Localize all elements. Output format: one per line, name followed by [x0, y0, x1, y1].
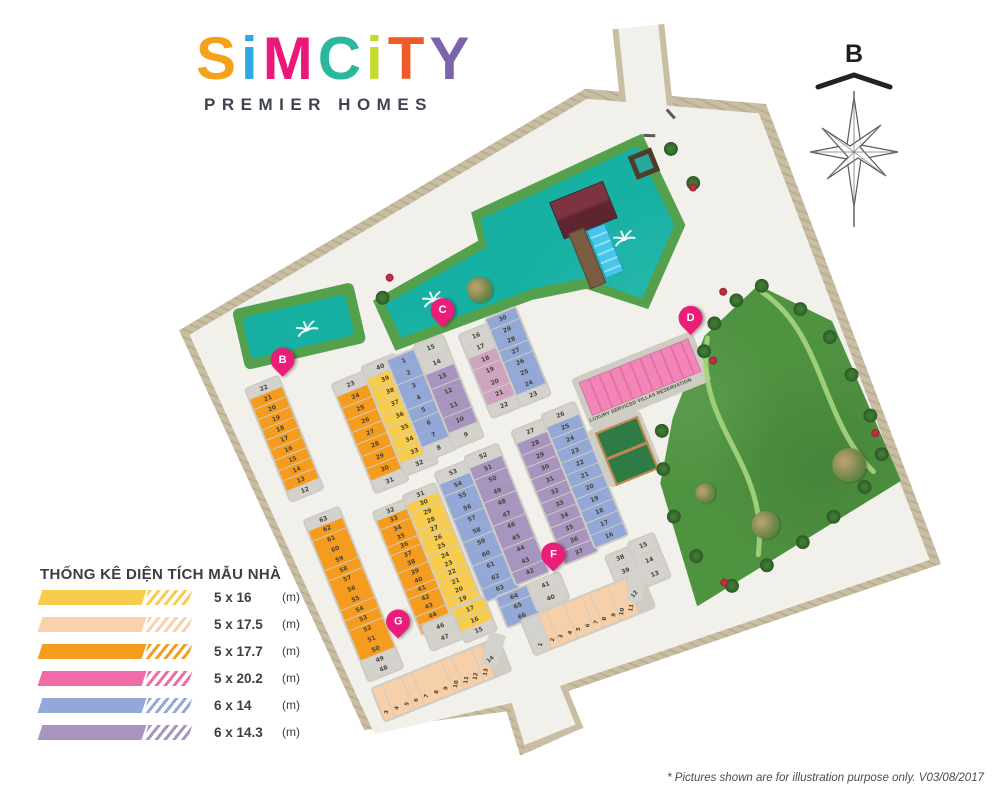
legend-swatch	[38, 698, 195, 713]
legend-swatch-stripes	[144, 590, 193, 605]
legend-unit-label: (m)	[282, 698, 300, 712]
legend-rows: 5 x 16(m)5 x 17.5(m)5 x 17.7(m)5 x 20.2(…	[40, 584, 360, 745]
map-pin-body: B	[266, 343, 300, 377]
legend-item: 5 x 17.7(m)	[40, 638, 360, 664]
legend-item: 5 x 16(m)	[40, 584, 360, 610]
legend-swatch-stripes	[144, 698, 193, 713]
legend-item: 5 x 17.5(m)	[40, 611, 360, 637]
logo-letter: S	[196, 30, 238, 87]
legend-unit-label: (m)	[282, 644, 300, 658]
legend-item: 6 x 14.3(m)	[40, 719, 360, 745]
logo-letter: C	[318, 30, 363, 87]
logo-letter: M	[263, 30, 315, 87]
legend-swatch-stripes	[144, 725, 193, 740]
legend-swatch-stripes	[144, 671, 193, 686]
legend-swatch	[38, 671, 195, 686]
logo-letter: i	[241, 30, 260, 87]
legend-swatch-solid	[38, 671, 147, 686]
logo-letter: T	[388, 30, 427, 87]
legend-title: THỐNG KÊ DIỆN TÍCH MẪU NHÀ	[40, 566, 360, 583]
map-pin-letter: B	[279, 354, 287, 366]
legend-size-label: 5 x 20.2	[214, 671, 282, 686]
legend-swatch-solid	[38, 644, 147, 659]
logo-letter: Y	[429, 30, 471, 87]
map-pin-B[interactable]: B	[271, 348, 295, 372]
legend-swatch-solid	[38, 617, 147, 632]
legend-swatch-solid	[38, 698, 147, 713]
lot-slat: 12	[626, 565, 646, 602]
map-pin-letter: C	[439, 304, 447, 316]
legend-size-label: 5 x 16	[214, 590, 282, 605]
logo-letter: i	[366, 30, 385, 87]
site-plan-page: SiMCiTY PREMIER HOMES B LUXURY SERVICED …	[0, 0, 1000, 810]
legend-unit-label: (m)	[282, 671, 300, 685]
legend-size-label: 6 x 14	[214, 698, 282, 713]
legend-item: 6 x 14(m)	[40, 692, 360, 718]
legend-size-label: 5 x 17.7	[214, 644, 282, 659]
map-pin-body: C	[426, 293, 460, 327]
legend-swatch	[38, 644, 195, 659]
map-pin-C[interactable]: C	[431, 298, 455, 322]
legend-swatch-solid	[38, 725, 147, 740]
legend-swatch-solid	[38, 590, 147, 605]
disclaimer-footnote: * Pictures shown are for illustration pu…	[667, 772, 984, 784]
legend-swatch-stripes	[144, 644, 193, 659]
map-pin-body: F	[536, 538, 570, 572]
legend-unit-label: (m)	[282, 725, 300, 739]
legend-swatch-stripes	[144, 617, 193, 632]
legend-size-label: 6 x 14.3	[214, 725, 282, 740]
logo-tagline: PREMIER HOMES	[196, 95, 466, 115]
map-pin-letter: D	[687, 312, 695, 324]
map-pin-G[interactable]: G	[386, 610, 410, 634]
map-pin-D[interactable]: D	[679, 306, 703, 330]
lot-size-legend: THỐNG KÊ DIỆN TÍCH MẪU NHÀ 5 x 16(m)5 x …	[40, 566, 360, 745]
legend-size-label: 5 x 17.5	[214, 617, 282, 632]
legend-unit-label: (m)	[282, 590, 300, 604]
legend-item: 5 x 20.2(m)	[40, 665, 360, 691]
map-pin-body: G	[381, 605, 415, 639]
legend-swatch	[38, 590, 195, 605]
legend-swatch	[38, 725, 195, 740]
legend-swatch	[38, 617, 195, 632]
compass-north-label: B	[806, 40, 902, 69]
map-pin-body: D	[674, 301, 708, 335]
logo-wordmark: SiMCiTY	[196, 30, 466, 87]
map-pin-letter: F	[550, 549, 557, 561]
simcity-logo: SiMCiTY PREMIER HOMES	[196, 30, 466, 115]
entrance-gate-icon	[643, 134, 655, 137]
map-pin-letter: G	[394, 616, 403, 628]
map-pin-F[interactable]: F	[541, 543, 565, 567]
legend-unit-label: (m)	[282, 617, 300, 631]
